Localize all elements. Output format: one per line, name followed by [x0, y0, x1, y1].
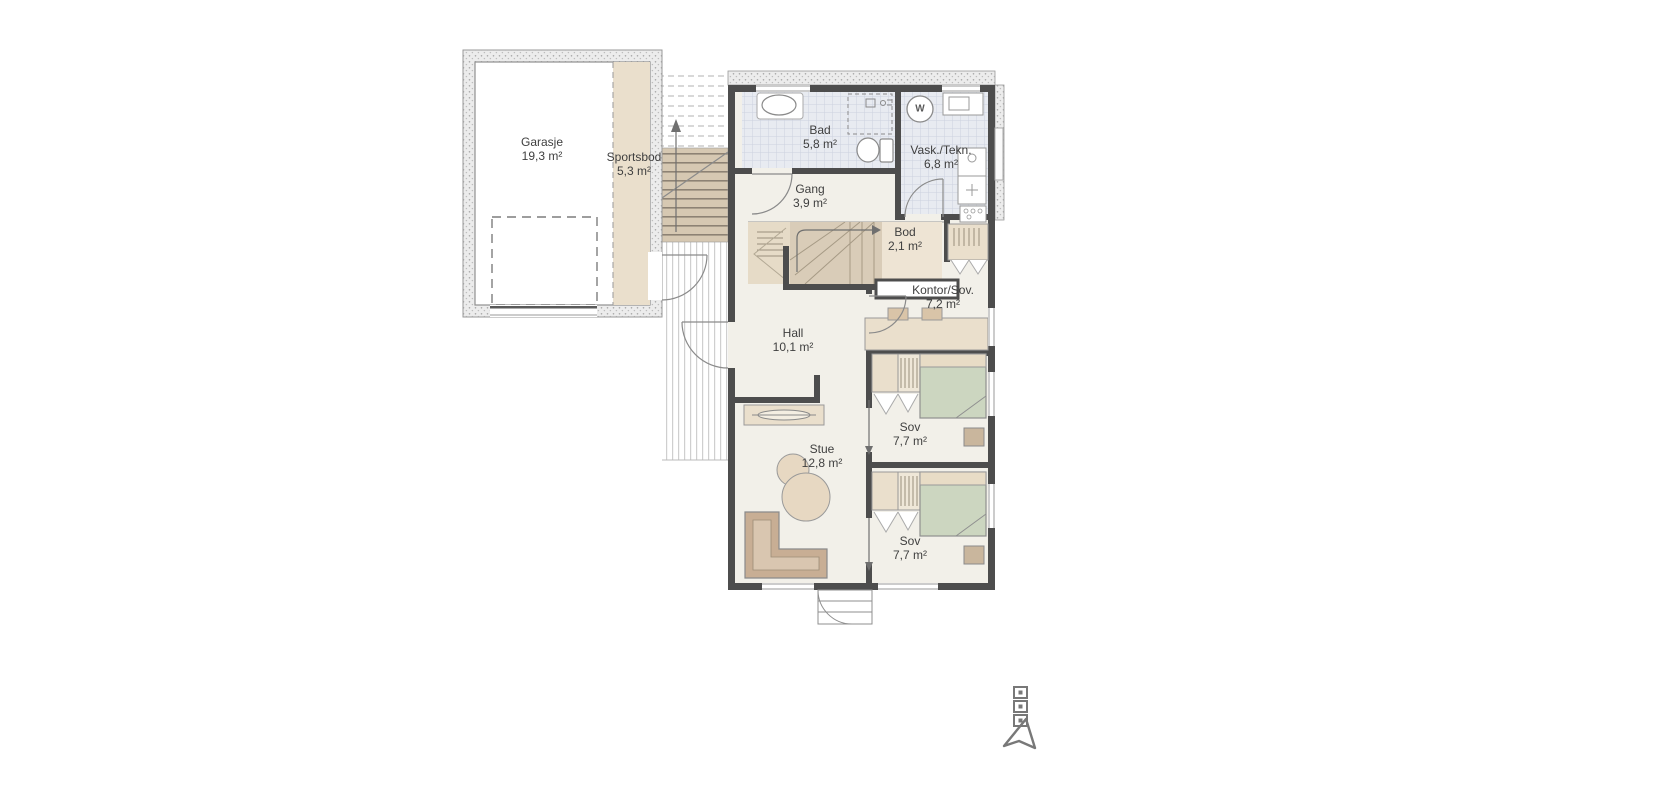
toilet-icon: [880, 139, 893, 162]
bed-pillow-sov1: [920, 354, 986, 367]
front-steps: [818, 590, 872, 624]
window-right-sov2: [988, 484, 995, 528]
logo-arrow-icon: [1004, 719, 1035, 748]
label-vask-tekn: Vask./Tekn. 6,8 m²: [910, 143, 971, 171]
desk: [865, 318, 988, 350]
tech-panel: [960, 206, 986, 222]
floor-plan-page: Garasje 19,3 m² Sportsbod 5,3 m² Bad 5,8…: [0, 0, 1670, 800]
logo-mark: [1004, 687, 1035, 748]
bedside-table-sov1: [964, 428, 984, 446]
label-garasje: Garasje 19,3 m²: [521, 135, 563, 163]
label-sportsbod: Sportsbod 5,3 m²: [607, 150, 662, 178]
window-sill-right: [995, 128, 1003, 180]
label-kontor-sov: Kontor/Sov. 7,2 m²: [912, 283, 974, 311]
bedside-table-sov2: [964, 546, 984, 564]
wardrobe-sov1: [872, 354, 898, 392]
stair-flight: [790, 222, 882, 284]
sportsbod-floor: [613, 62, 650, 305]
label-sov-1: Sov 7,7 m²: [893, 420, 927, 448]
label-stue: Stue 12,8 m²: [802, 442, 843, 470]
round-table: [782, 473, 830, 521]
label-hall: Hall 10,1 m²: [773, 326, 814, 354]
trellis-dashed-area: [658, 76, 727, 146]
bad-door-opening: [752, 168, 792, 174]
deck-area: [662, 242, 728, 460]
label-sov-2: Sov 7,7 m²: [893, 534, 927, 562]
exterior-stairs: [662, 119, 728, 242]
window-bottom-stue: [762, 583, 814, 590]
window-bottom-sov2: [878, 583, 938, 590]
vask-door-opening: [905, 214, 941, 220]
bed-pillow-sov2: [920, 472, 986, 485]
sportsbod-door-opening: [648, 252, 662, 300]
label-bad: Bad 5,8 m²: [803, 123, 837, 151]
wardrobe-sov2: [872, 472, 898, 510]
window-right-kontor: [988, 308, 995, 346]
washer-label: W: [915, 104, 924, 115]
entry-door-opening: [728, 322, 735, 368]
label-bod: Bod 2,1 m²: [888, 225, 922, 253]
label-gang: Gang 3,9 m²: [793, 182, 827, 210]
window-top-vask: [942, 85, 980, 92]
window-top-bad: [756, 85, 810, 92]
window-right-sov1: [988, 372, 995, 416]
sink-icon: [762, 95, 796, 115]
floor-plan-drawing: [0, 0, 1670, 800]
